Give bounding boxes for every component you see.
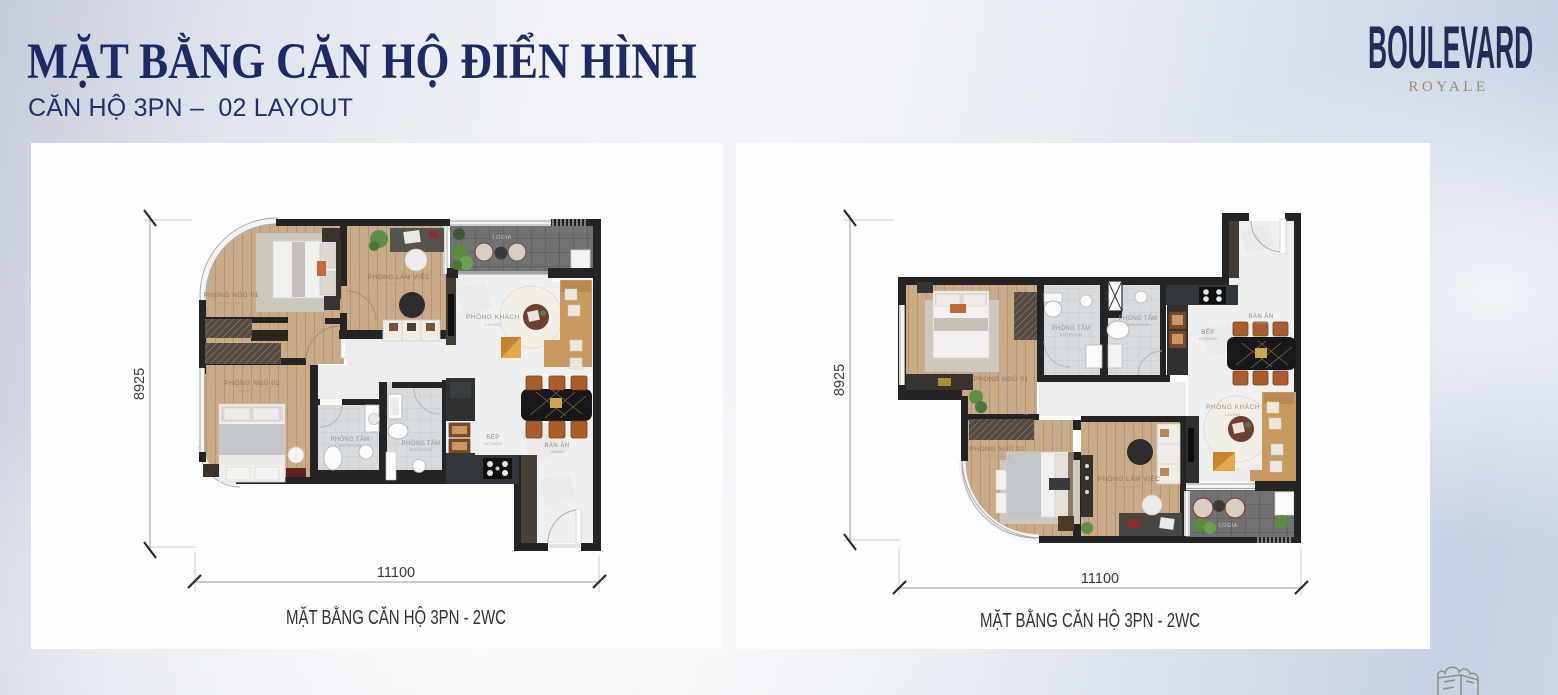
svg-text:DINING: DINING bbox=[1254, 320, 1268, 325]
svg-text:BATHROOM: BATHROOM bbox=[410, 447, 433, 452]
svg-text:MẶT BẰNG CĂN HỘ 3PN - 2WC: MẶT BẰNG CĂN HỘ 3PN - 2WC bbox=[286, 605, 506, 629]
svg-text:PHÒNG KHÁCH: PHÒNG KHÁCH bbox=[1206, 402, 1260, 411]
svg-text:BATHROOM: BATHROOM bbox=[1060, 332, 1083, 337]
svg-text:PHÒNG NGỦ 01: PHÒNG NGỦ 01 bbox=[973, 374, 1028, 383]
svg-text:8925: 8925 bbox=[832, 364, 848, 396]
svg-text:LOGIA: LOGIA bbox=[492, 235, 511, 241]
svg-text:PHÒNG TẮM: PHÒNG TẮM bbox=[402, 439, 441, 447]
svg-text:PHÒNG LÀM VIỆC: PHÒNG LÀM VIỆC bbox=[368, 272, 431, 281]
svg-text:BÀN ĂN: BÀN ĂN bbox=[544, 442, 569, 449]
svg-text:BATHROOM: BATHROOM bbox=[339, 443, 362, 448]
svg-text:11100: 11100 bbox=[1081, 571, 1119, 587]
svg-text:PHÒNG NGỦ 02: PHÒNG NGỦ 02 bbox=[224, 378, 279, 387]
svg-text:BATHROOM: BATHROOM bbox=[1127, 322, 1150, 327]
svg-text:KITCHEN: KITCHEN bbox=[484, 441, 502, 446]
svg-text:WORKROOM: WORKROOM bbox=[385, 282, 413, 287]
svg-text:LIVING: LIVING bbox=[1225, 412, 1241, 417]
svg-text:8925: 8925 bbox=[132, 368, 148, 400]
svg-text:PHÒNG KHÁCH: PHÒNG KHÁCH bbox=[466, 312, 520, 321]
svg-text:KITCHEN: KITCHEN bbox=[1199, 336, 1217, 341]
svg-text:MẶT BẰNG CĂN HỘ 3PN - 2WC: MẶT BẰNG CĂN HỘ 3PN - 2WC bbox=[980, 608, 1200, 632]
svg-text:PHÒNG LÀM VIỆC: PHÒNG LÀM VIỆC bbox=[1098, 474, 1161, 483]
svg-text:BEDROOM 2: BEDROOM 2 bbox=[238, 388, 266, 393]
svg-text:BEDROOM 1: BEDROOM 1 bbox=[987, 384, 1015, 389]
svg-text:PHÒNG NGỦ 01: PHÒNG NGỦ 01 bbox=[203, 290, 258, 299]
svg-text:11100: 11100 bbox=[377, 565, 415, 581]
svg-text:LIVING: LIVING bbox=[485, 322, 501, 327]
svg-text:WORKROOM: WORKROOM bbox=[1115, 484, 1143, 489]
svg-text:PHÒNG TẮM: PHÒNG TẮM bbox=[1119, 314, 1158, 322]
svg-text:DINING: DINING bbox=[550, 449, 564, 454]
svg-text:BẾP: BẾP bbox=[1201, 329, 1215, 336]
svg-text:PHÒNG NGỦ 02: PHÒNG NGỦ 02 bbox=[969, 444, 1024, 453]
svg-text:BẾP: BẾP bbox=[486, 434, 500, 441]
svg-text:BEDROOM 1: BEDROOM 1 bbox=[217, 300, 245, 305]
svg-text:BEDROOM 2: BEDROOM 2 bbox=[983, 454, 1011, 459]
svg-text:BÀN ĂN: BÀN ĂN bbox=[1248, 313, 1273, 320]
svg-text:PHÒNG TẮM: PHÒNG TẮM bbox=[331, 435, 370, 443]
svg-text:PHÒNG TẮM: PHÒNG TẮM bbox=[1052, 324, 1091, 332]
svg-text:LOGIA: LOGIA bbox=[1218, 523, 1237, 529]
